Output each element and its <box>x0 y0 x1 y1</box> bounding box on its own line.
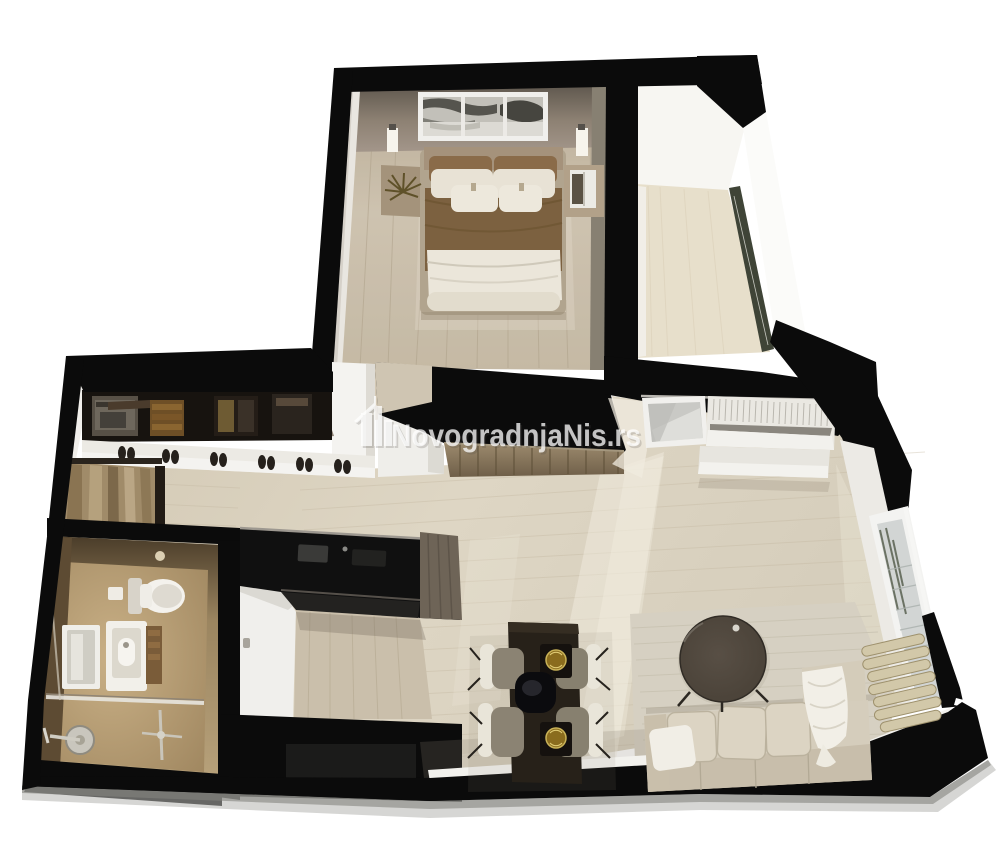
svg-text:NovogradnjaNis.rs: NovogradnjaNis.rs <box>391 417 641 453</box>
